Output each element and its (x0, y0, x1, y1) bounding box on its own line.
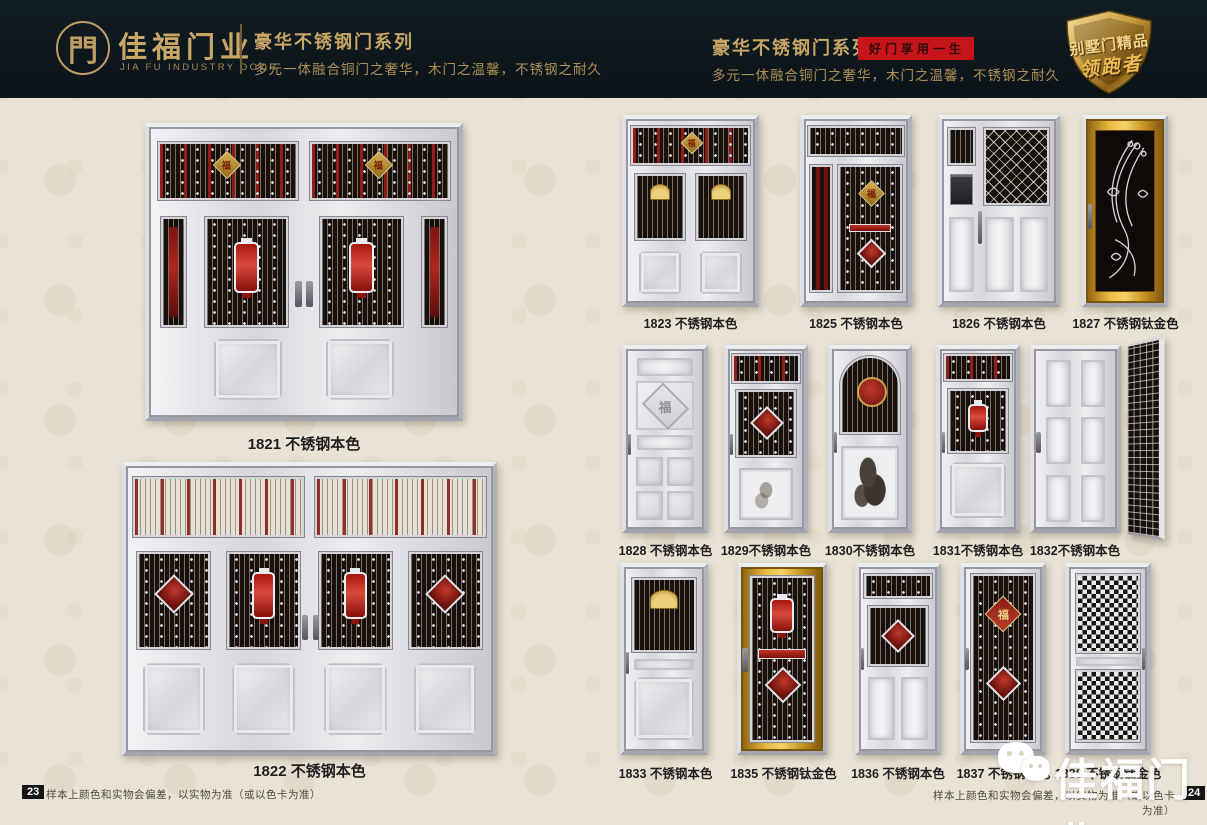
leaf-grille (635, 174, 685, 240)
recessed-panel (1081, 360, 1106, 407)
lantern-icon (770, 598, 794, 634)
grille-dots (810, 128, 902, 153)
phoenix-scroll-icon (1096, 131, 1153, 291)
door-1831 (936, 345, 1020, 533)
door-handle (313, 615, 319, 641)
red-bar (849, 224, 892, 233)
grille-dots (734, 356, 798, 381)
header-divider (240, 24, 242, 74)
intercom-unit (950, 174, 973, 205)
etched-octagon-panel (950, 462, 1006, 518)
fu-emboss-panel: 福 (636, 381, 694, 430)
red-medallion-icon (857, 377, 887, 407)
top-grille-band (944, 354, 1012, 381)
door-1827 (1082, 115, 1168, 307)
wechat-icon (998, 742, 1056, 796)
door-handle (742, 648, 748, 672)
mid-panel (634, 659, 695, 670)
red-bar (758, 649, 806, 659)
door-handle (302, 615, 308, 641)
door-handle (1036, 432, 1040, 454)
top-grille-band (732, 354, 800, 383)
door-1825: 福 (800, 115, 912, 307)
upper-grille (632, 578, 696, 652)
small-grille (948, 128, 975, 165)
emboss-panel (324, 663, 386, 735)
fan-icon (650, 590, 679, 609)
mid-grille (736, 390, 797, 457)
fan-icon (650, 184, 670, 200)
door-1821: 福 福 (145, 123, 463, 421)
lantern-icon (344, 572, 368, 619)
narrow-leaf-stripes (810, 165, 832, 292)
catalog-spread: 門 佳福门业 JIA FU INDUSTRY DOOR 豪华不锈钢门系列 多元一… (0, 0, 1207, 825)
lower-panel (1020, 217, 1049, 292)
lantern-icon (234, 242, 260, 293)
lower-panel (901, 677, 928, 740)
door-label: 1823 不锈钢本色 (602, 313, 779, 332)
emboss-panel (700, 251, 743, 293)
lantern-icon (252, 572, 276, 619)
mid-rail (1076, 657, 1140, 666)
transom-grille (864, 574, 933, 598)
recessed-panel (1046, 417, 1071, 464)
leaf-grille (227, 552, 300, 649)
emboss-panel (639, 251, 682, 293)
emboss-panel (414, 663, 476, 735)
red-diamond-icon (881, 619, 915, 653)
brand-name: 佳福门业 (118, 24, 254, 66)
transom-grille: 福 (158, 142, 298, 200)
recessed-panel (1046, 475, 1071, 522)
emboss-panel (143, 663, 205, 735)
transom-grille: 福 (631, 126, 750, 165)
transom-grille (315, 477, 486, 537)
leaf-grille (137, 552, 210, 649)
full-grille: 福 (971, 574, 1035, 741)
square-panel (667, 457, 694, 486)
door-1833 (620, 563, 708, 755)
watermark: 佳福门业 (998, 740, 1198, 810)
leaf-grille (696, 174, 746, 240)
premium-shield-badge: 别墅门精品 领跑者 (1053, 8, 1165, 96)
door-1836 (855, 563, 941, 755)
door-1835 (737, 563, 827, 755)
door-handle (295, 281, 301, 307)
door-label: 1827 不锈钢钛金色 (1047, 313, 1204, 332)
brand-logo-icon: 門 (56, 21, 110, 75)
door-label: 1821 不锈钢本色 (145, 433, 463, 454)
transom-grille (808, 126, 904, 155)
recessed-panel (1081, 475, 1106, 522)
emboss-panel (214, 339, 282, 400)
open-lattice-leaf (1128, 337, 1165, 540)
mid-panel (637, 435, 693, 449)
door-handle (1142, 648, 1145, 670)
grille-dots (946, 356, 1010, 379)
lower-panel (949, 217, 974, 292)
page-number-left: 23 (22, 785, 44, 799)
lattice-panel (1076, 670, 1140, 742)
recessed-panel (1081, 417, 1106, 464)
scroll-art-panel (1095, 130, 1154, 292)
emboss-panel (232, 663, 294, 735)
diamond-lattice-window (984, 128, 1049, 205)
door-1832 (1030, 345, 1168, 533)
header-bar: 門 佳福门业 JIA FU INDUSTRY DOOR 豪华不锈钢门系列 多元一… (0, 0, 1207, 98)
lattice-panel (1076, 574, 1140, 653)
door-handle (834, 432, 837, 454)
watermark-brand-text: 佳福门业 (1054, 744, 1198, 825)
series-subtitle-right: 多元一体融合铜门之奢华，木门之温馨，不锈钢之耐久 (712, 64, 1060, 84)
leaf-grille (319, 552, 392, 649)
door-handle (626, 652, 629, 674)
square-panel (636, 457, 663, 486)
square-panel (636, 491, 663, 520)
door-handle (978, 211, 981, 244)
full-grille (750, 576, 814, 742)
ink-art-panel (841, 446, 899, 520)
top-panel (637, 358, 693, 376)
leaf-grille: 福 (838, 165, 901, 292)
door-handle (1088, 204, 1093, 230)
door-1823: 福 (622, 115, 759, 307)
lower-panel (985, 217, 1014, 292)
side-grille (422, 217, 447, 327)
series-title-right: 豪华不锈钢门系列 (712, 34, 872, 60)
door-handle (306, 281, 312, 307)
door-handle (965, 648, 969, 670)
slogan-badge: 好门享用一生 (858, 37, 974, 60)
grille-dots (866, 576, 931, 596)
door-label: 1822 不锈钢本色 (122, 760, 497, 781)
door-handle (942, 432, 945, 454)
door-handle (730, 434, 733, 456)
emboss-panel (326, 339, 394, 400)
lower-panel (868, 677, 895, 740)
door-label: 1825 不锈钢本色 (780, 313, 932, 332)
lantern-icon (349, 242, 375, 293)
series-subtitle-left: 多元一体融合铜门之奢华，木门之温馨，不锈钢之耐久 (254, 58, 602, 78)
mid-grille (868, 606, 927, 667)
recessed-panel (1046, 360, 1071, 407)
transom-grille: 福 (310, 142, 450, 200)
door-1830 (828, 345, 912, 533)
etched-panel (739, 468, 794, 520)
arch-grille (840, 356, 901, 433)
door-1837: 福 (960, 563, 1046, 755)
mid-grille (948, 389, 1009, 454)
fan-icon (711, 184, 731, 200)
closed-leaf (1030, 345, 1121, 533)
door-1826 (938, 115, 1060, 307)
side-grille (161, 217, 186, 327)
lantern-icon (968, 404, 988, 432)
square-panel (667, 491, 694, 520)
series-title-left: 豪华不锈钢门系列 (254, 28, 414, 54)
door-handle (861, 648, 864, 670)
leaf-grille (205, 217, 289, 327)
leaf-grille (320, 217, 404, 327)
door-handle (628, 434, 631, 456)
emboss-panel (634, 677, 693, 740)
disclaimer-left: 样本上颜色和实物会偏差，以实物为准（或以色卡为准） (46, 787, 321, 802)
door-1829 (724, 345, 808, 533)
door-1838 (1065, 563, 1151, 755)
leaf-grille (409, 552, 482, 649)
door-1822 (122, 462, 497, 756)
door-label: 1832不锈钢本色 (1005, 540, 1145, 559)
door-1828: 福 (622, 345, 708, 533)
transom-grille (133, 477, 304, 537)
